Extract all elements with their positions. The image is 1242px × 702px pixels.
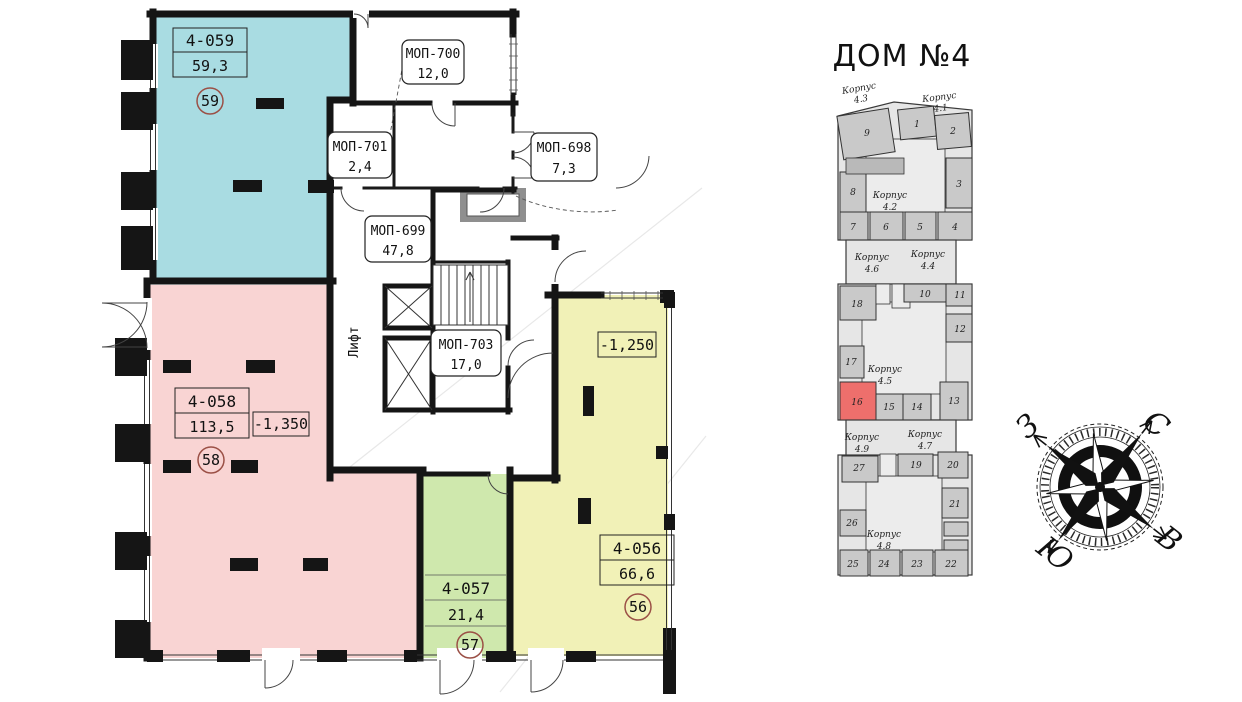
svg-text:4: 4 xyxy=(951,223,958,233)
svg-text:4.9: 4.9 xyxy=(854,445,870,455)
mop-698-label: МОП-698 7,3 xyxy=(531,133,597,181)
svg-text:21: 21 xyxy=(948,500,960,510)
unit-area: 66,6 xyxy=(619,565,655,583)
svg-text:14: 14 xyxy=(911,403,923,413)
svg-text:4.3: 4.3 xyxy=(852,94,869,107)
mop-id: МОП-698 xyxy=(537,141,592,156)
unit-area: 113,5 xyxy=(189,418,234,436)
svg-text:18: 18 xyxy=(851,300,863,310)
svg-text:8: 8 xyxy=(850,188,856,198)
stairs xyxy=(433,265,508,325)
svg-text:9: 9 xyxy=(864,129,870,139)
svg-text:Корпус: Корпус xyxy=(854,253,889,263)
scene: 4-059 59,3 59 4-058 113,5 -1,350 58 4-05… xyxy=(0,0,1242,702)
svg-text:Корпус: Корпус xyxy=(910,250,945,260)
entry-porch xyxy=(460,188,526,222)
svg-text:4.7: 4.7 xyxy=(917,442,933,452)
mop-id: МОП-701 xyxy=(333,140,388,155)
svg-text:12: 12 xyxy=(954,325,966,335)
unit-number: 56 xyxy=(629,598,647,616)
mop-703-label: МОП-703 17,0 xyxy=(431,330,501,376)
svg-text:4.5: 4.5 xyxy=(877,377,893,387)
elevation-mark: -1,350 xyxy=(254,415,308,433)
unit-area: 21,4 xyxy=(448,606,484,624)
unit-number: 59 xyxy=(201,92,219,110)
svg-text:6: 6 xyxy=(883,223,889,233)
locator-title: ДОМ №4 xyxy=(833,39,972,74)
svg-text:Корпус: Корпус xyxy=(921,91,957,105)
svg-text:4.1: 4.1 xyxy=(932,103,948,115)
svg-text:27: 27 xyxy=(852,464,865,474)
svg-text:3: 3 xyxy=(956,180,962,190)
locator-tab xyxy=(944,522,968,536)
svg-text:26: 26 xyxy=(845,519,858,529)
svg-text:10: 10 xyxy=(919,290,931,300)
compass-rose: С В Ю З xyxy=(982,369,1218,605)
svg-text:5: 5 xyxy=(917,223,923,233)
unit-number: 57 xyxy=(461,636,479,654)
locator-wing xyxy=(846,158,904,174)
mop-area: 12,0 xyxy=(417,67,448,82)
svg-text:7: 7 xyxy=(850,223,856,233)
svg-text:1: 1 xyxy=(914,120,920,130)
svg-text:16: 16 xyxy=(851,398,863,408)
svg-text:24: 24 xyxy=(877,560,890,570)
mop-area: 47,8 xyxy=(382,244,413,259)
mop-699-label: МОП-699 47,8 xyxy=(365,216,431,262)
elevator-label: Лифт xyxy=(347,326,362,357)
svg-text:4.6: 4.6 xyxy=(864,265,880,275)
floor-plan: 4-059 59,3 59 4-058 113,5 -1,350 58 4-05… xyxy=(102,10,706,694)
compass-label-north: С xyxy=(1136,404,1176,446)
svg-text:13: 13 xyxy=(948,397,960,407)
elevator-shaft xyxy=(385,286,432,410)
unit-number: 58 xyxy=(202,451,220,469)
locator-tab xyxy=(880,454,896,476)
elevation-mark: -1,250 xyxy=(600,336,654,354)
svg-text:19: 19 xyxy=(910,461,922,471)
svg-text:15: 15 xyxy=(883,403,895,413)
svg-text:Корпус: Корпус xyxy=(844,433,879,443)
svg-text:2: 2 xyxy=(949,127,956,137)
building-locator: ДОМ №4 xyxy=(833,39,972,576)
svg-text:20: 20 xyxy=(946,461,959,471)
svg-text:4.8: 4.8 xyxy=(876,542,892,552)
svg-text:23: 23 xyxy=(910,560,923,570)
svg-text:17: 17 xyxy=(845,358,857,368)
korpus-4-8-area xyxy=(866,476,942,552)
unit-area: 59,3 xyxy=(192,57,228,75)
mop-700-label: МОП-700 12,0 xyxy=(402,40,464,84)
room-4-057[interactable] xyxy=(422,474,510,658)
mop-701-label: МОП-701 2,4 xyxy=(328,132,392,178)
compass-label-east: В xyxy=(1149,518,1189,560)
mop-id: МОП-699 xyxy=(371,224,426,239)
unit-id: 4-057 xyxy=(442,579,490,598)
unit-id: 4-059 xyxy=(186,31,234,50)
svg-text:22: 22 xyxy=(944,560,957,570)
mop-area: 2,4 xyxy=(348,160,372,175)
floor-plan-page: 4-059 59,3 59 4-058 113,5 -1,350 58 4-05… xyxy=(0,0,1242,702)
svg-text:Корпус: Корпус xyxy=(872,191,907,201)
mop-id: МОП-703 xyxy=(439,338,494,353)
unit-id: 4-056 xyxy=(613,539,661,558)
svg-text:4.2: 4.2 xyxy=(882,203,898,213)
room-4-059[interactable] xyxy=(153,14,353,278)
locator-tab xyxy=(876,284,890,304)
svg-text:Корпус: Корпус xyxy=(907,430,942,440)
mop-area: 17,0 xyxy=(450,358,481,373)
svg-text:Корпус: Корпус xyxy=(866,530,901,540)
svg-text:11: 11 xyxy=(954,291,965,301)
mop-id: МОП-700 xyxy=(406,47,461,62)
unit-id: 4-058 xyxy=(188,392,236,411)
svg-text:4.4: 4.4 xyxy=(920,262,936,272)
svg-text:Корпус: Корпус xyxy=(867,365,902,375)
svg-text:25: 25 xyxy=(846,560,859,570)
mop-area: 7,3 xyxy=(552,162,575,177)
compass-star xyxy=(982,369,1218,605)
